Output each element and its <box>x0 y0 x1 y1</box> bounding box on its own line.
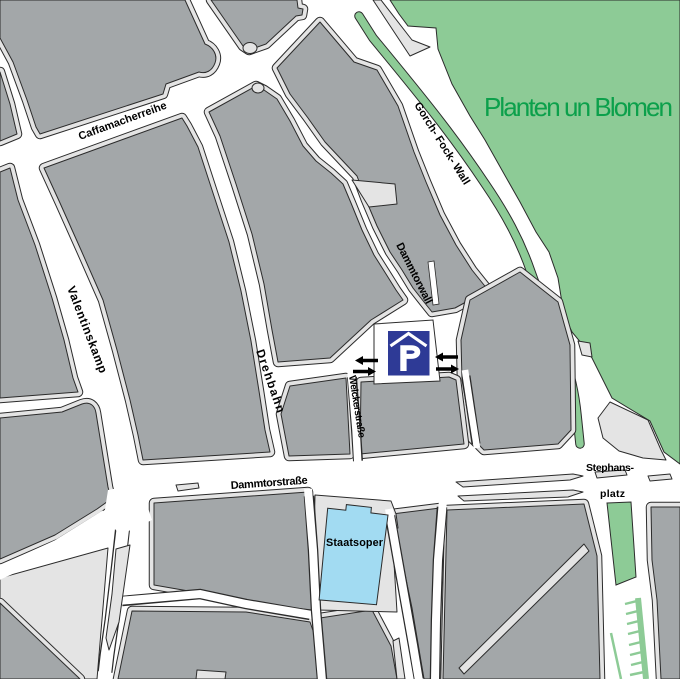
svg-text:platz: platz <box>600 488 625 500</box>
svg-text:Planten un Blomen: Planten un Blomen <box>484 92 673 122</box>
svg-text:Stephans-: Stephans- <box>586 462 635 474</box>
svg-text:Staatsoper: Staatsoper <box>326 537 384 549</box>
